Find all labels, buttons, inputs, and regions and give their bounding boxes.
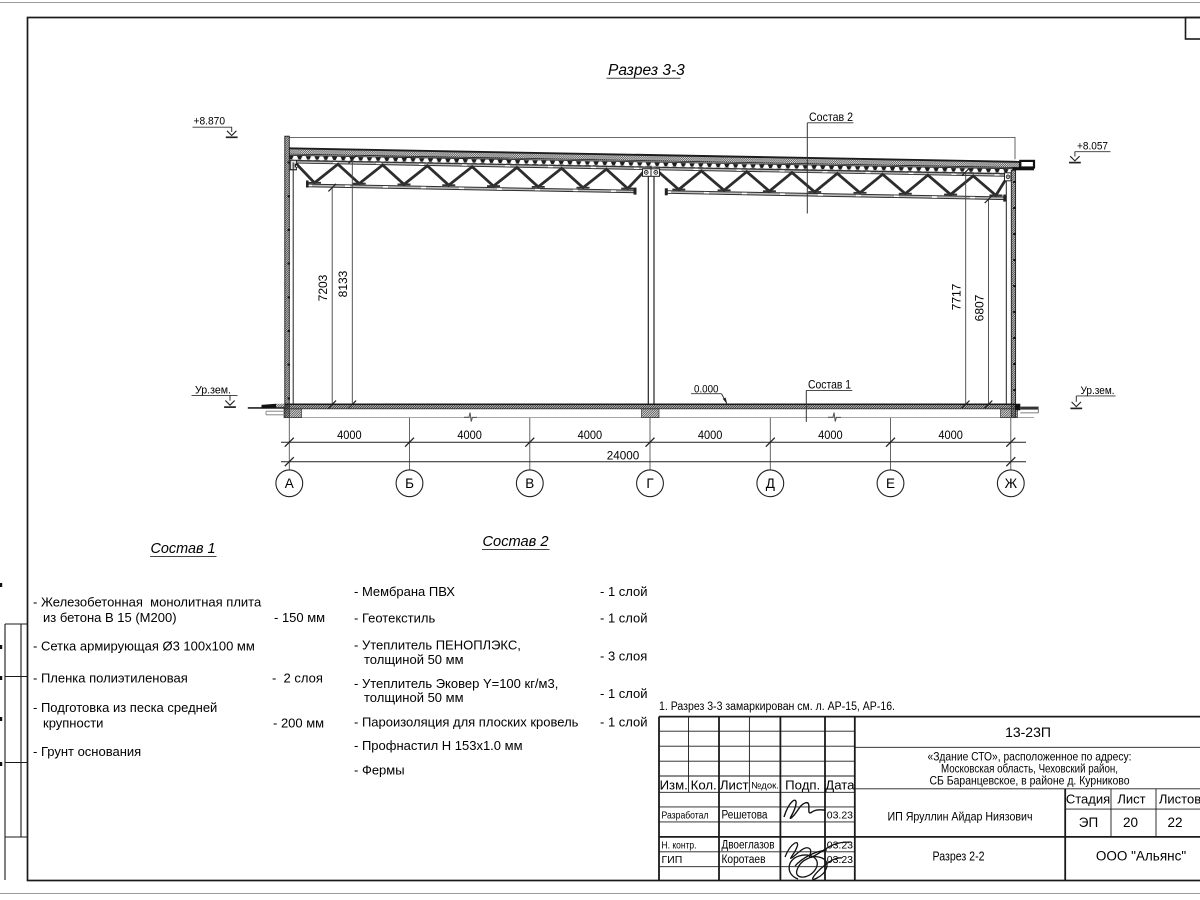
svg-text:- 1 слой: - 1 слой <box>600 584 648 599</box>
svg-text:- Подготовка из песка средней: - Подготовка из песка средней <box>33 700 217 715</box>
svg-text:03.23: 03.23 <box>827 839 853 851</box>
svg-text:Разрез 3-3: Разрез 3-3 <box>608 62 685 79</box>
svg-text:Решетова: Решетова <box>722 810 769 822</box>
svg-text:Изм.: Изм. <box>660 777 688 792</box>
svg-text:Д: Д <box>766 476 775 491</box>
svg-text:- Сетка армирующая Ø3 100х100: - Сетка армирующая Ø3 100х100 мм <box>33 639 255 654</box>
svg-text:Дата: Дата <box>825 777 855 792</box>
svg-text:- Профнастил Н 153х1.0 мм: - Профнастил Н 153х1.0 мм <box>354 738 523 753</box>
svg-text:Кол.: Кол. <box>691 777 717 792</box>
svg-text:Состав 1: Состав 1 <box>808 378 851 392</box>
svg-text:7203: 7203 <box>316 274 330 301</box>
svg-text:Коротаев: Коротаев <box>722 854 766 866</box>
svg-text:Подп.: Подп. <box>785 777 820 792</box>
svg-text:4000: 4000 <box>457 428 482 442</box>
svg-text:7717: 7717 <box>950 283 964 310</box>
svg-text:- Железобетонная монолитная п: - Железобетонная монолитная плита <box>33 595 262 610</box>
svg-text:- 2 слоя: - 2 слоя <box>272 671 323 686</box>
svg-text:толщиной 50 мм: толщиной 50 мм <box>364 690 464 705</box>
svg-text:13-23П: 13-23П <box>1005 724 1051 740</box>
svg-text:Состав 2: Состав 2 <box>809 110 853 124</box>
svg-text:Разработал: Разработал <box>662 810 709 822</box>
svg-text:ООО "Альянс": ООО "Альянс" <box>1096 849 1186 864</box>
svg-text:Двоеглазов: Двоеглазов <box>722 839 775 851</box>
svg-text:А: А <box>285 476 294 491</box>
svg-text:+8.057: +8.057 <box>1077 141 1108 153</box>
svg-text:СБ Баранцевское, в районе д. К: СБ Баранцевское, в районе д. Курниково <box>930 774 1130 788</box>
svg-text:22: 22 <box>1167 815 1182 830</box>
svg-text:- Утеплитель Эковер Y=100 кг/м: - Утеплитель Эковер Y=100 кг/м3, <box>354 676 558 691</box>
svg-text:20: 20 <box>1123 815 1138 830</box>
svg-text:- Пароизоляция для плоских кро: - Пароизоляция для плоских кровель <box>354 715 579 730</box>
svg-text:- 1 слой: - 1 слой <box>600 686 648 701</box>
svg-text:8133: 8133 <box>336 270 350 297</box>
svg-text:4000: 4000 <box>337 428 362 442</box>
svg-text:- 1 слой: - 1 слой <box>600 715 648 730</box>
svg-text:Лист: Лист <box>1117 792 1145 807</box>
svg-text:- Пленка полиэтиленовая: - Пленка полиэтиленовая <box>33 671 188 686</box>
svg-text:4000: 4000 <box>698 428 723 442</box>
svg-text:- Утеплитель ПЕНОПЛЭКС,: - Утеплитель ПЕНОПЛЭКС, <box>354 638 521 653</box>
svg-text:из бетона В 15 (М200): из бетона В 15 (М200) <box>43 610 177 625</box>
svg-text:- 1 слой: - 1 слой <box>600 611 648 626</box>
svg-text:№док.: №док. <box>751 781 779 792</box>
svg-text:03.23: 03.23 <box>827 810 853 822</box>
svg-text:03.23: 03.23 <box>827 854 853 866</box>
svg-text:1. Разрез 3-3 замаркирован см.: 1. Разрез 3-3 замаркирован см. л. АР-15,… <box>659 701 895 713</box>
svg-text:Лист: Лист <box>720 777 749 792</box>
svg-text:4000: 4000 <box>818 428 843 442</box>
svg-text:Б: Б <box>405 476 414 491</box>
svg-text:- 3 слоя: - 3 слоя <box>600 649 647 664</box>
svg-text:Стадия: Стадия <box>1066 792 1110 807</box>
svg-text:- 150 мм: - 150 мм <box>274 610 325 625</box>
svg-text:Ур.зем.: Ур.зем. <box>1081 385 1115 397</box>
svg-text:4000: 4000 <box>578 428 603 442</box>
svg-text:- Грунт основания: - Грунт основания <box>33 744 141 759</box>
svg-text:Разрез 2-2: Разрез 2-2 <box>933 849 985 863</box>
svg-text:ЭП: ЭП <box>1079 815 1098 830</box>
svg-text:Состав 1: Состав 1 <box>151 540 216 557</box>
svg-text:- Фермы: - Фермы <box>354 763 405 778</box>
svg-text:- Мембрана ПВХ: - Мембрана ПВХ <box>354 584 455 599</box>
svg-text:Ур.зем.: Ур.зем. <box>195 384 231 396</box>
svg-text:- 200 мм: - 200 мм <box>273 716 324 731</box>
svg-text:крупности: крупности <box>43 716 103 731</box>
svg-text:Ж: Ж <box>1005 476 1018 491</box>
svg-text:4000: 4000 <box>938 428 963 442</box>
svg-text:В: В <box>525 476 534 491</box>
svg-text:Н. контр.: Н. контр. <box>662 839 697 851</box>
svg-text:ГИП: ГИП <box>662 854 683 866</box>
svg-text:- Геотекстиль: - Геотекстиль <box>354 611 435 626</box>
svg-text:толщиной 50 мм: толщиной 50 мм <box>364 652 464 667</box>
svg-text:ИП Яруллин Айдар Ниязович: ИП Яруллин Айдар Ниязович <box>888 810 1033 824</box>
svg-text:Состав 2: Состав 2 <box>483 533 550 550</box>
svg-text:Листов: Листов <box>1159 792 1200 807</box>
svg-text:Г: Г <box>646 476 654 491</box>
svg-text:+8.870: +8.870 <box>194 115 226 127</box>
svg-text:6807: 6807 <box>973 294 987 321</box>
svg-text:Е: Е <box>886 476 895 491</box>
svg-text:24000: 24000 <box>607 449 640 463</box>
